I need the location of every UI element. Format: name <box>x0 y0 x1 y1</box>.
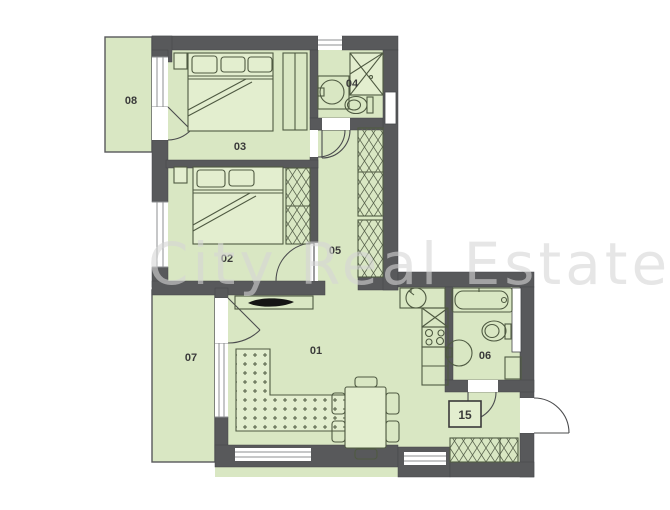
dining-table <box>345 387 386 448</box>
room-label-07: 07 <box>185 352 197 364</box>
unit-number-box: 15 <box>449 401 481 427</box>
room-label-03: 03 <box>234 141 246 153</box>
window-room03-left <box>152 57 168 107</box>
duct-room04 <box>385 92 396 124</box>
window-bottom-left <box>235 448 311 461</box>
window-top <box>318 36 342 50</box>
unit-number-label: 15 <box>458 408 472 422</box>
nightstand <box>174 53 187 69</box>
room-label-06: 06 <box>479 350 491 362</box>
entry-door <box>520 398 569 433</box>
entry-wardrobe <box>450 438 518 462</box>
room-label-08: 08 <box>125 95 137 107</box>
watermark-text: City Real Estate <box>148 230 670 298</box>
floor-plan: 15 01 02 03 04 05 06 07 08 City Real Est… <box>0 0 670 510</box>
room-label-04: 04 <box>346 78 359 90</box>
room-label-01: 01 <box>310 345 322 357</box>
window-living-left <box>215 343 228 417</box>
floor-plan-canvas: 15 01 02 03 04 05 06 07 08 City Real Est… <box>0 0 670 510</box>
window-bottom-mid <box>404 452 446 465</box>
nightstand <box>174 167 187 183</box>
balcony-07-area <box>152 290 215 462</box>
double-bed-03 <box>188 53 273 131</box>
